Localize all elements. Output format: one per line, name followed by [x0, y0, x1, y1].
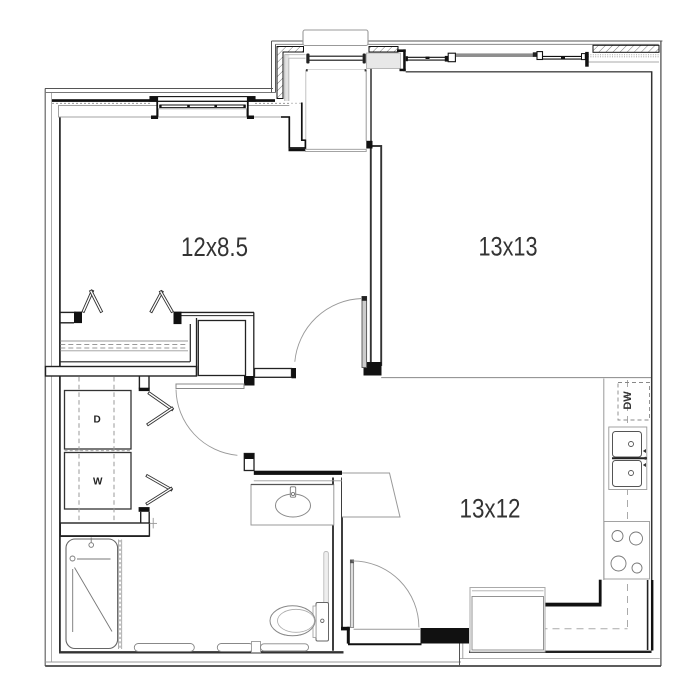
svg-text:W: W — [93, 477, 103, 488]
svg-text:D: D — [94, 415, 101, 426]
svg-text:13x12: 13x12 — [460, 494, 521, 524]
svg-text:13x13: 13x13 — [479, 232, 538, 262]
svg-text:12x8.5: 12x8.5 — [181, 232, 248, 262]
svg-text:DW: DW — [622, 391, 634, 410]
